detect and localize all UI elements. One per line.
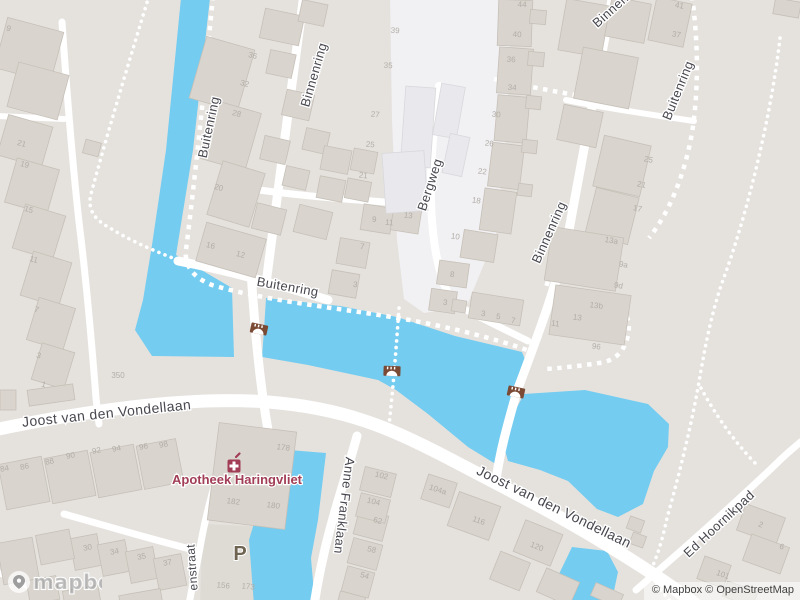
house-number: 40 bbox=[512, 30, 522, 39]
building bbox=[527, 51, 544, 66]
house-number: 30 bbox=[491, 110, 501, 120]
house-number: 9d bbox=[613, 280, 623, 290]
poi-apotheek-haringvliet[interactable]: Apotheek Haringvliet bbox=[172, 472, 303, 487]
house-number: 180 bbox=[266, 500, 281, 511]
building bbox=[525, 95, 541, 109]
house-number: 35 bbox=[383, 61, 393, 71]
building bbox=[35, 529, 74, 565]
house-number: 25 bbox=[365, 140, 375, 150]
building bbox=[316, 176, 346, 203]
building bbox=[266, 50, 296, 79]
building bbox=[529, 9, 546, 24]
house-number: 39 bbox=[390, 26, 400, 36]
poi-parking[interactable]: P bbox=[233, 543, 246, 565]
building bbox=[0, 390, 16, 410]
building bbox=[451, 299, 467, 313]
building bbox=[97, 540, 131, 577]
house-number: 27 bbox=[370, 110, 380, 120]
house-number: 21 bbox=[358, 171, 368, 181]
map-canvas[interactable]: 9211915117313632282016123935272521131197… bbox=[0, 0, 800, 600]
house-number: 26 bbox=[484, 139, 494, 149]
building bbox=[574, 47, 639, 109]
building bbox=[517, 183, 532, 197]
house-number: 10 bbox=[450, 231, 461, 241]
mapbox-logo[interactable]: mapbox bbox=[6, 568, 102, 596]
mapbox-pin-icon bbox=[8, 571, 30, 593]
map-attribution[interactable]: © Mapbox © OpenStreetMap bbox=[644, 582, 800, 600]
house-number: 96 bbox=[591, 341, 602, 351]
house-number: 182 bbox=[226, 496, 241, 507]
building bbox=[557, 104, 604, 148]
house-number: 156 bbox=[216, 580, 231, 590]
building bbox=[497, 0, 533, 47]
house-number: 18 bbox=[471, 195, 482, 205]
house-number: 178 bbox=[276, 442, 291, 453]
house-number: 13b bbox=[589, 300, 604, 311]
building bbox=[260, 135, 291, 164]
building bbox=[479, 188, 517, 234]
house-number: 173 bbox=[241, 581, 256, 591]
house-number: 13 bbox=[572, 312, 583, 322]
building bbox=[320, 146, 352, 175]
building bbox=[521, 139, 537, 153]
map-viewport[interactable]: 9211915117313632282016123935272521131197… bbox=[0, 0, 800, 600]
house-number: 11 bbox=[385, 218, 395, 228]
house-number: 34 bbox=[507, 83, 517, 93]
house-number: 350 bbox=[111, 371, 125, 380]
building bbox=[549, 285, 631, 345]
house-number: 22 bbox=[477, 167, 487, 177]
bridge-icon bbox=[383, 366, 400, 377]
attribution-text: © Mapbox © OpenStreetMap bbox=[652, 584, 794, 596]
building bbox=[460, 230, 498, 263]
mapbox-logo-text: mapbox bbox=[33, 570, 102, 594]
building bbox=[344, 178, 371, 202]
house-number: 13 bbox=[403, 211, 413, 221]
building bbox=[487, 142, 524, 190]
house-number: 44 bbox=[517, 0, 527, 9]
house-number: 36 bbox=[506, 55, 516, 65]
